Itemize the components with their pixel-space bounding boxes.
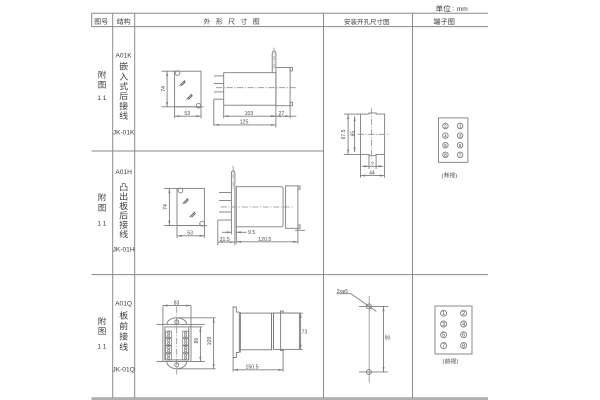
svg-text:8: 8 [462,343,465,349]
svg-text:): ) [455,173,457,179]
svg-text:(: ( [442,173,444,179]
svg-text:A01H: A01H [115,169,132,176]
svg-text:31.5: 31.5 [220,237,230,243]
svg-text:A01Q: A01Q [115,301,132,308]
svg-text:9: 9 [371,161,374,166]
svg-text:67.5: 67.5 [341,129,347,139]
svg-text:83: 83 [174,300,180,306]
svg-text:86: 86 [194,338,200,344]
svg-text:65: 65 [351,131,357,137]
svg-text:150.5: 150.5 [246,364,259,370]
svg-text:7: 7 [442,343,445,349]
svg-text:5: 5 [459,143,462,148]
svg-text:53: 53 [184,111,190,117]
svg-text:109: 109 [207,337,213,346]
svg-text:3: 3 [442,322,445,328]
svg-text:27: 27 [279,111,285,117]
svg-text:JK-01Q: JK-01Q [112,367,134,374]
svg-text:9.5: 9.5 [248,230,255,236]
svg-text:8: 8 [444,153,447,158]
svg-text:1 1: 1 1 [97,220,106,227]
svg-text:mm: mm [457,6,468,13]
svg-text:5: 5 [442,333,445,339]
svg-text:3: 3 [459,133,462,138]
svg-text:90: 90 [385,335,391,341]
svg-text:74: 74 [163,204,169,210]
svg-text:): ) [456,359,458,365]
svg-text:1: 1 [442,311,445,317]
svg-text:A01K: A01K [116,53,133,60]
svg-text:1 1: 1 1 [97,344,106,351]
svg-text:JK-01H: JK-01H [113,246,135,253]
svg-text:6: 6 [444,143,447,148]
svg-text::: : [452,6,454,13]
svg-text:103: 103 [245,111,254,117]
svg-text:120.5: 120.5 [258,237,271,243]
svg-text:2: 2 [444,124,447,129]
svg-text:6: 6 [462,333,465,339]
svg-text:4: 4 [462,322,465,328]
svg-text:44: 44 [369,171,375,177]
svg-text:73: 73 [302,329,308,335]
svg-text:(: ( [443,359,445,365]
svg-text:4: 4 [444,133,447,138]
svg-text:7: 7 [459,153,462,158]
svg-text:53: 53 [187,230,193,236]
svg-text:1: 1 [459,124,462,129]
svg-text:1 1: 1 1 [97,95,106,102]
svg-text:JK-01K: JK-01K [113,130,135,137]
svg-text:74: 74 [161,86,167,92]
svg-text:125: 125 [240,120,249,126]
svg-text:2: 2 [462,311,465,317]
